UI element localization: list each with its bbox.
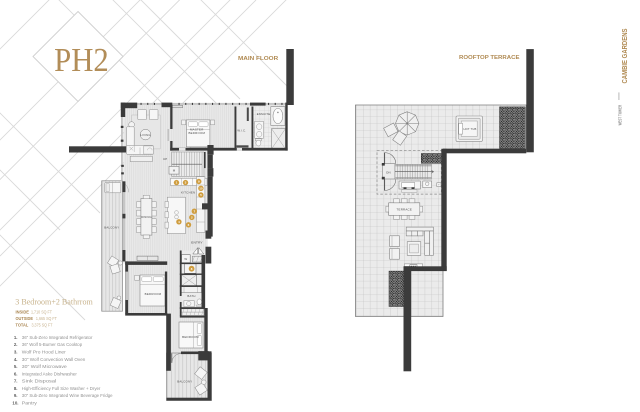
svg-text:3,375 SQ FT: 3,375 SQ FT — [32, 322, 53, 327]
svg-text:MAIN FLOOR: MAIN FLOOR — [238, 56, 278, 62]
svg-text:LIVING: LIVING — [140, 133, 150, 137]
svg-text:W: W — [184, 257, 187, 261]
svg-text:KITCHEN: KITCHEN — [181, 190, 195, 194]
svg-text:7.: 7. — [14, 379, 18, 384]
svg-text:BALCONY: BALCONY — [177, 379, 192, 383]
svg-text:5.: 5. — [14, 364, 18, 369]
svg-text:8.: 8. — [14, 386, 18, 391]
svg-text:1.: 1. — [14, 335, 18, 340]
svg-text:W.I.C.: W.I.C. — [237, 129, 246, 133]
svg-text:10: 10 — [199, 186, 203, 190]
svg-text:36" Sub-Zero Integrated Refrig: 36" Sub-Zero Integrated Refrigerator — [22, 335, 93, 340]
svg-text:30" Wolf Convection Wall Oven: 30" Wolf Convection Wall Oven — [22, 357, 86, 362]
svg-text:Pantry: Pantry — [22, 400, 38, 405]
svg-text:OUTSIDE: OUTSIDE — [16, 316, 34, 321]
svg-text:1,710 SQ FT: 1,710 SQ FT — [31, 309, 52, 314]
svg-text:1,665 SQ FT: 1,665 SQ FT — [36, 316, 57, 321]
svg-text:10.: 10. — [12, 400, 18, 405]
svg-text:Integrated Asko Dishwasher: Integrated Asko Dishwasher — [22, 371, 78, 376]
svg-text:UP: UP — [163, 157, 167, 161]
svg-text:BALCONY: BALCONY — [104, 225, 119, 229]
svg-text:30" Wolf Microwave: 30" Wolf Microwave — [22, 364, 68, 369]
svg-text:CAMBIE GARDENS: CAMBIE GARDENS — [620, 29, 629, 84]
svg-text:Sink Disposal: Sink Disposal — [22, 379, 57, 384]
svg-text:3.: 3. — [14, 350, 18, 355]
svg-text:BEDROOM: BEDROOM — [145, 292, 162, 296]
svg-text:6.: 6. — [14, 371, 18, 376]
svg-text:Wolf Pro Hood Liner: Wolf Pro Hood Liner — [22, 350, 67, 355]
svg-text:BATH: BATH — [187, 294, 195, 298]
svg-text:High-Efficiency Full Size Wash: High-Efficiency Full Size Washer + Dryer — [22, 386, 101, 391]
svg-text:BEDROOM: BEDROOM — [182, 335, 199, 339]
svg-text:ENTRY: ENTRY — [191, 241, 203, 245]
svg-text:PH2: PH2 — [54, 42, 109, 79]
svg-text:HOT TUB: HOT TUB — [463, 127, 476, 131]
svg-text:4.: 4. — [14, 357, 18, 362]
svg-text:DN: DN — [386, 170, 391, 174]
svg-text:ROOFTOP TERRACE: ROOFTOP TERRACE — [459, 55, 520, 61]
svg-text:TOTAL: TOTAL — [16, 322, 29, 327]
svg-text:WEST TOWER: WEST TOWER — [617, 104, 622, 125]
svg-text:TERRACE: TERRACE — [397, 207, 413, 211]
svg-text:36" Wolf 5-Burner Gas Cooktop: 36" Wolf 5-Burner Gas Cooktop — [22, 342, 83, 347]
svg-text:BEDROOM: BEDROOM — [188, 131, 205, 135]
svg-text:INSIDE: INSIDE — [16, 309, 30, 314]
svg-text:DINING: DINING — [141, 215, 152, 219]
svg-text:ENSUITE: ENSUITE — [257, 112, 271, 116]
svg-text:3 Bedroom+2 Bathrrom: 3 Bedroom+2 Bathrrom — [15, 296, 93, 306]
svg-text:2.: 2. — [14, 342, 18, 347]
svg-text:30" Sub-Zero Integrated Wine B: 30" Sub-Zero Integrated Wine Beverage Fr… — [22, 393, 113, 398]
svg-text:9.: 9. — [14, 393, 18, 398]
